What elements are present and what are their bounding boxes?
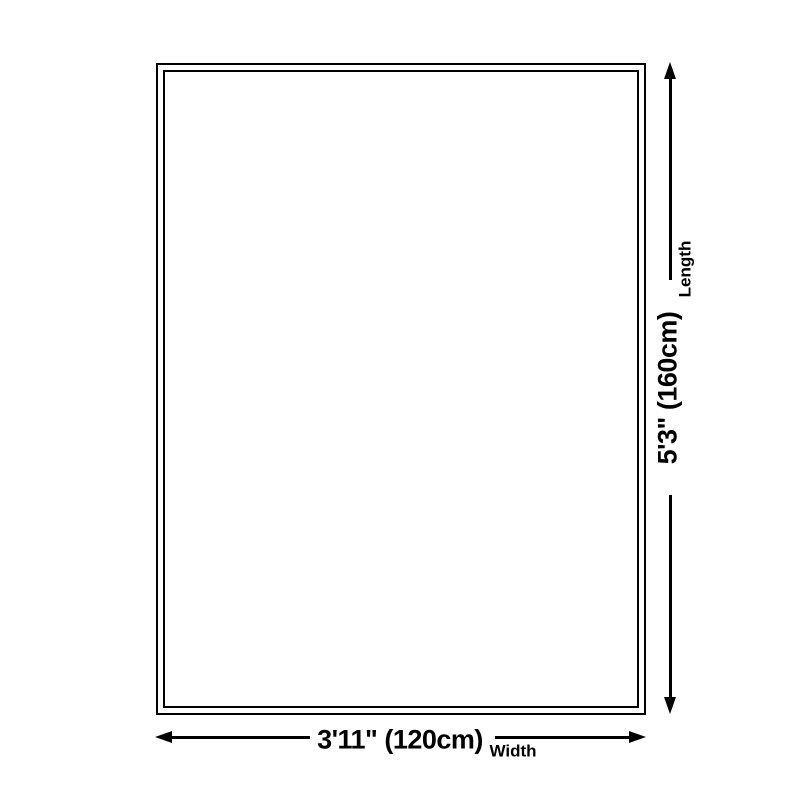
length-dimension-line-top — [669, 77, 672, 280]
width-dimension-line-left — [170, 736, 310, 739]
length-axis-label: Length — [677, 241, 694, 298]
length-value-label: 5'3" (160cm) — [655, 312, 682, 465]
rug-outline-inner — [163, 70, 639, 708]
length-dimension-line-bottom — [669, 495, 672, 699]
width-dimension-line-right — [495, 736, 630, 739]
width-axis-label: Width — [489, 743, 536, 760]
arrow-right-icon — [629, 731, 646, 743]
arrow-down-icon — [664, 697, 676, 714]
width-value-label: 3'11" (120cm) — [317, 727, 483, 754]
rug-outline-outer — [156, 63, 646, 715]
rug-dimension-diagram: Length 5'3" (160cm) 3'11" (120cm) Width — [0, 0, 800, 800]
